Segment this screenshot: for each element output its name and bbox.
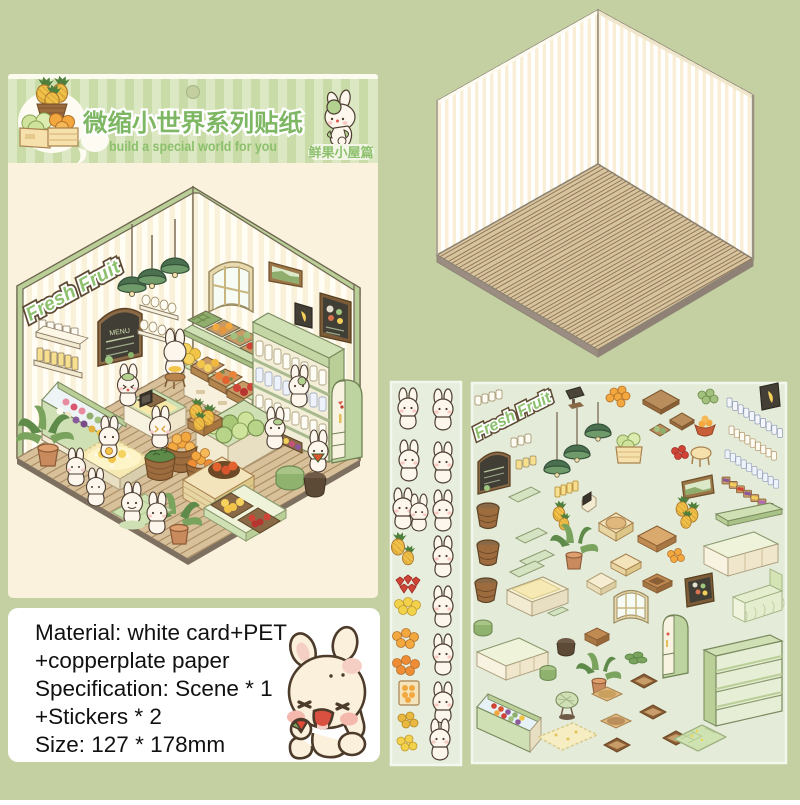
svg-text:Material: white card+PET: Material: white card+PET (35, 620, 287, 645)
svg-text:Specification: Scene * 1: Specification: Scene * 1 (35, 676, 273, 701)
svg-text:鲜果小屋篇: 鲜果小屋篇 (308, 145, 373, 160)
svg-text:+copperplate paper: +copperplate paper (35, 648, 230, 673)
svg-text:Size: 127 * 178mm: Size: 127 * 178mm (35, 732, 225, 757)
svg-text:+Stickers * 2: +Stickers * 2 (35, 704, 162, 729)
svg-text:微缩小世界系列贴纸: 微缩小世界系列贴纸 (82, 109, 303, 137)
svg-text:build a special world for you: build a special world for you (109, 139, 277, 154)
